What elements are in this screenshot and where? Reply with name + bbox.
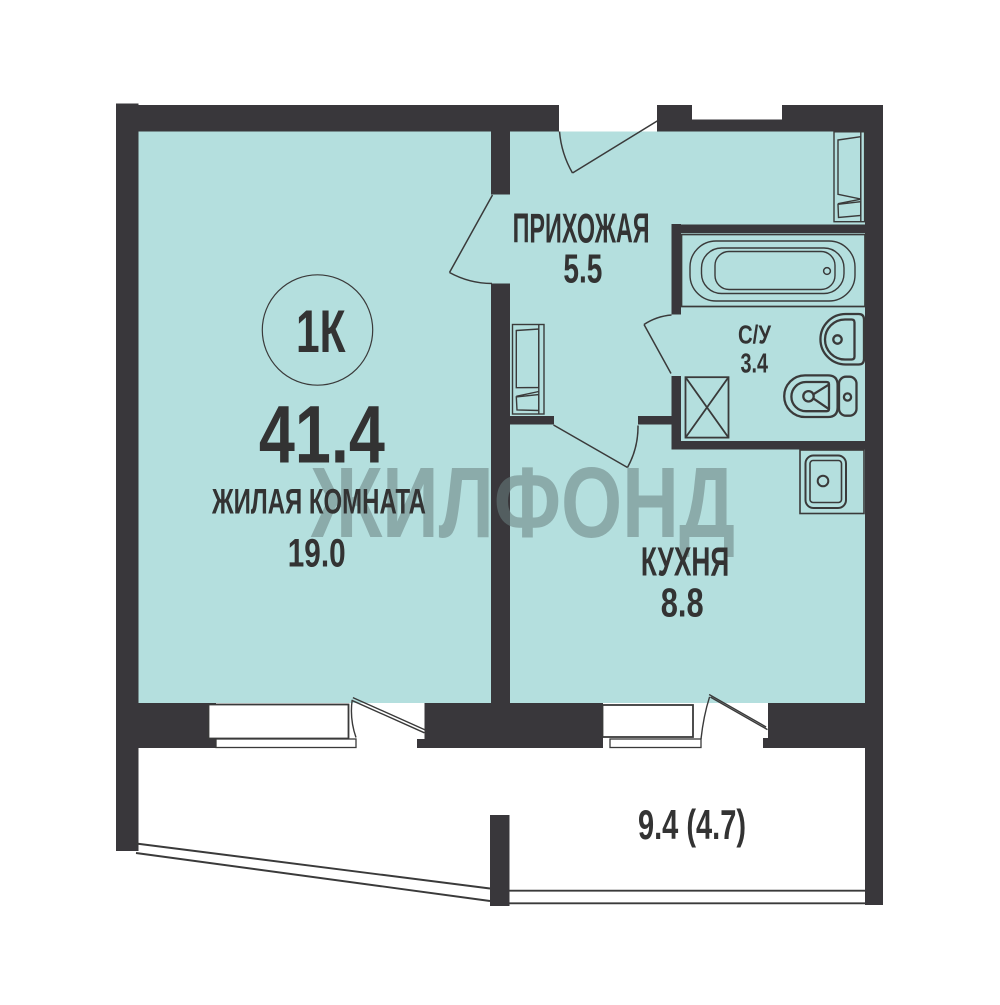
svg-text:41.4: 41.4: [259, 390, 385, 481]
svg-text:С/У: С/У: [738, 320, 772, 350]
svg-text:19.0: 19.0: [288, 531, 346, 575]
svg-text:1К: 1К: [296, 297, 346, 365]
svg-text:ЖИЛАЯ КОМНАТА: ЖИЛАЯ КОМНАТА: [211, 483, 426, 522]
svg-text:3.4: 3.4: [741, 348, 769, 379]
svg-text:8.8: 8.8: [661, 580, 704, 626]
svg-text:5.5: 5.5: [563, 246, 602, 292]
svg-text:9.4 (4.7): 9.4 (4.7): [638, 801, 746, 848]
svg-text:КУХНЯ: КУХНЯ: [641, 539, 729, 585]
